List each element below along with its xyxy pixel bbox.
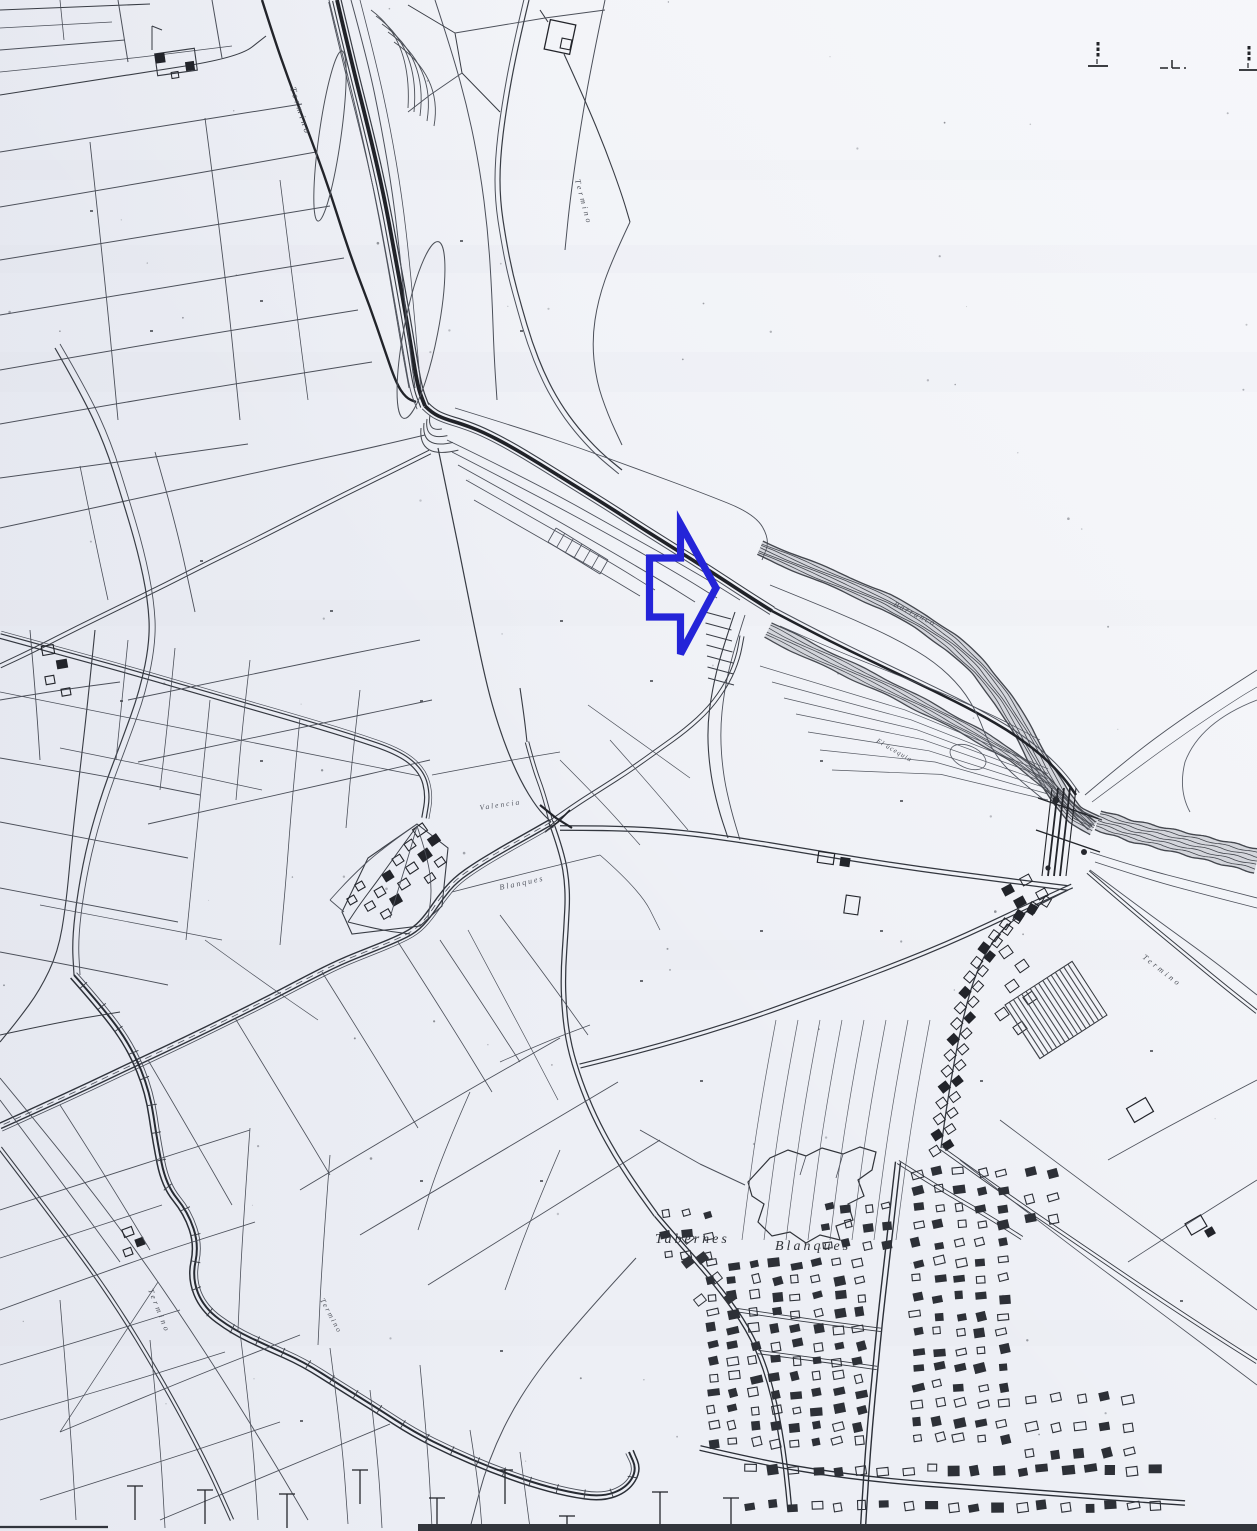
svg-text:Blanques: Blanques: [775, 1239, 851, 1254]
